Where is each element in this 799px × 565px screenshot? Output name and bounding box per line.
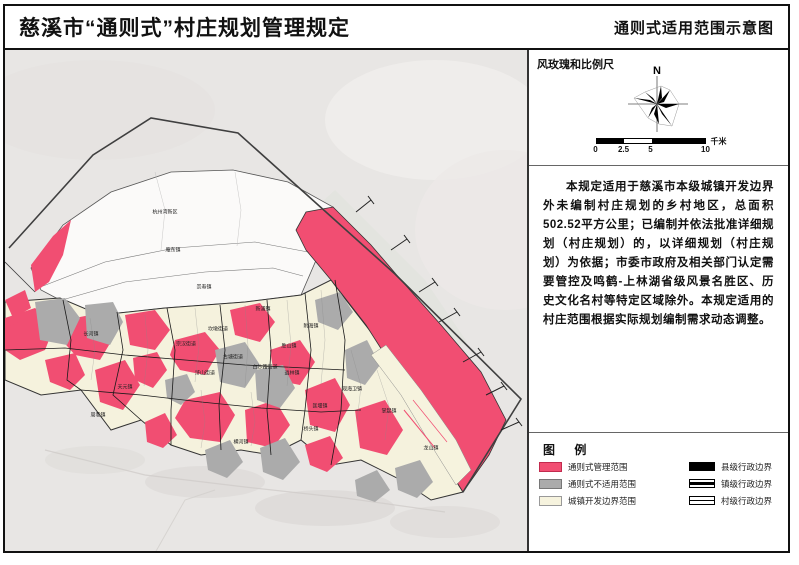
town-boundary-symbol	[689, 479, 715, 488]
map-town-label: 庵东镇	[165, 249, 180, 254]
description-section: 本规定适用于慈溪市本级城镇开发边界外未编制村庄规划的乡村地区，总面积502.52…	[529, 166, 788, 433]
compass-section-title: 风玫瑰和比例尺	[537, 56, 614, 72]
legend-item: 通则式不适用范围	[539, 478, 689, 489]
drawing-name: 通则式适用范围示意图	[614, 17, 774, 38]
legend-item-label: 县级行政边界	[721, 461, 772, 473]
legend-item-label: 通则式不适用范围	[568, 478, 636, 490]
legend-item: 镇级行政边界	[689, 478, 782, 489]
map-town-label: 浒山街道	[195, 372, 215, 377]
map-town-label: 宗汉街道	[176, 343, 196, 348]
map-town-label: 横河镇	[233, 441, 248, 446]
pink-area-swatch	[539, 462, 562, 472]
map-town-label: 长河镇	[83, 333, 98, 338]
map-town-label: 桥头镇	[303, 428, 318, 433]
scale-bar: 千米 0 2.5 5 10	[594, 138, 724, 154]
gray-area-swatch	[539, 479, 562, 489]
info-panel: 风玫瑰和比例尺 N	[527, 50, 788, 551]
scale-tick: 0	[593, 145, 597, 154]
map-town-label: 附海镇	[303, 325, 318, 330]
legend-title: 图 例	[543, 441, 594, 458]
north-letter: N	[653, 65, 661, 77]
map-town-label: 白沙路街道	[252, 366, 277, 371]
map-town-label: 掌起镇	[381, 410, 396, 415]
legend-item: 村级行政边界	[689, 495, 782, 506]
sheet-title: 慈溪市“通则式”村庄规划管理规定	[19, 12, 350, 42]
map-town-label: 胜山镇	[281, 345, 296, 350]
wind-rose-icon: N	[624, 64, 694, 136]
planning-sheet: 慈溪市“通则式”村庄规划管理规定 通则式适用范围示意图	[0, 0, 799, 565]
map-town-label: 龙山镇	[423, 447, 438, 452]
map-town-label: 古塘街道	[223, 356, 243, 361]
legend-section: 图 例 通则式管理范围 通则式不适用范围	[529, 433, 788, 551]
legend-columns: 通则式管理范围 通则式不适用范围 城镇开发边界范围	[539, 461, 782, 506]
legend-line-items: 县级行政边界 镇级行政边界 村级行政边界	[689, 461, 782, 506]
map-town-label: 崇寿镇	[196, 286, 211, 291]
map-town-label: 逍林镇	[284, 372, 299, 377]
map-town-label: 观海卫镇	[342, 388, 362, 393]
regulation-description: 本规定适用于慈溪市本级城镇开发边界外未编制村庄规划的乡村地区，总面积502.52…	[543, 178, 774, 330]
title-bar: 慈溪市“通则式”村庄规划管理规定 通则式适用范围示意图	[5, 6, 788, 50]
village-boundary-symbol	[689, 496, 715, 505]
scale-ticks: 0 2.5 5 10	[594, 144, 724, 154]
map-town-label: 杭州湾新区	[152, 211, 177, 216]
wind-rose: N	[624, 64, 694, 141]
legend-item: 城镇开发边界范围	[539, 495, 689, 506]
scale-tick: 5	[648, 145, 652, 154]
legend-area-items: 通则式管理范围 通则式不适用范围 城镇开发边界范围	[539, 461, 689, 506]
compass-section: 风玫瑰和比例尺 N	[529, 50, 788, 166]
map-town-label: 坎墩街道	[208, 328, 228, 333]
map-town-label: 周巷镇	[90, 414, 105, 419]
map-drawing	[5, 50, 527, 551]
content-row: 杭州湾新区庵东镇崇寿镇长河镇天元镇周巷镇宗汉街道坎墩街道古塘街道白沙路街道浒山街…	[5, 50, 788, 551]
map-town-label: 天元镇	[117, 386, 132, 391]
legend-item: 县级行政边界	[689, 461, 782, 472]
legend-item-label: 村级行政边界	[721, 495, 772, 507]
legend-item-label: 城镇开发边界范围	[568, 495, 636, 507]
county-boundary-symbol	[689, 462, 715, 471]
legend-item-label: 镇级行政边界	[721, 478, 772, 490]
map-town-label: 新浦镇	[255, 308, 270, 313]
map-canvas[interactable]: 杭州湾新区庵东镇崇寿镇长河镇天元镇周巷镇宗汉街道坎墩街道古塘街道白沙路街道浒山街…	[5, 50, 527, 551]
sheet-frame: 慈溪市“通则式”村庄规划管理规定 通则式适用范围示意图	[3, 4, 790, 553]
cream-area-swatch	[539, 496, 562, 506]
map-town-label: 匡堰镇	[312, 405, 327, 410]
scale-tick: 2.5	[618, 145, 629, 154]
scale-tick: 10	[701, 145, 710, 154]
legend-item: 通则式管理范围	[539, 461, 689, 472]
legend-item-label: 通则式管理范围	[568, 461, 628, 473]
